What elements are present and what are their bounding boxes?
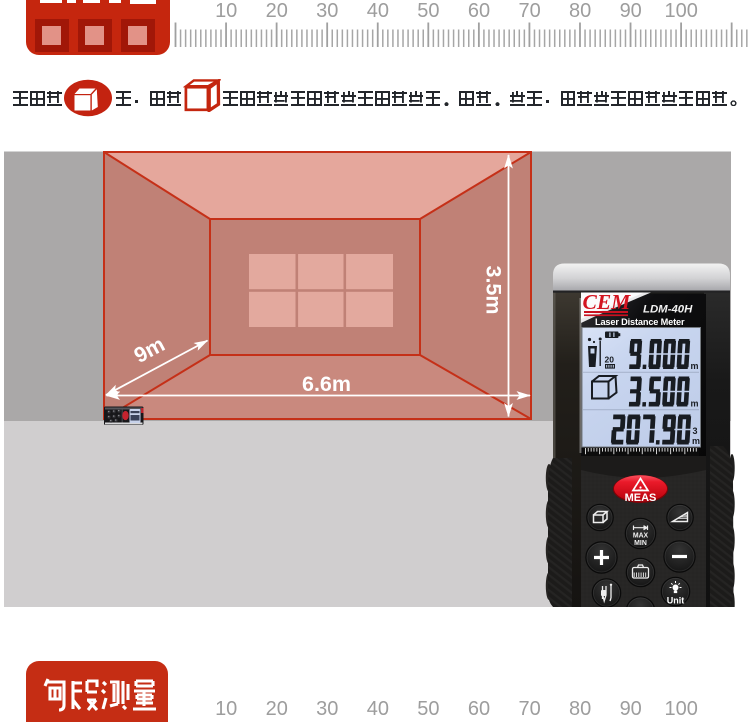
svg-text:6.6m: 6.6m: [302, 372, 351, 396]
svg-text:MIN: MIN: [634, 540, 647, 547]
svg-text:m: m: [692, 436, 700, 446]
svg-text:MEAS: MEAS: [625, 492, 657, 504]
svg-text:Unit: Unit: [667, 596, 685, 606]
svg-text:LDM-40H: LDM-40H: [643, 304, 693, 316]
svg-text:3.5m: 3.5m: [482, 266, 506, 315]
svg-text:3: 3: [693, 426, 698, 436]
svg-text:CLR: CLR: [632, 606, 649, 616]
svg-text:20: 20: [605, 355, 615, 365]
svg-text:m: m: [691, 399, 699, 409]
svg-text:MAX: MAX: [633, 533, 649, 540]
svg-text:m: m: [691, 361, 699, 371]
svg-text:Laser Distance Meter: Laser Distance Meter: [595, 317, 685, 327]
svg-text:CEM: CEM: [583, 290, 632, 314]
